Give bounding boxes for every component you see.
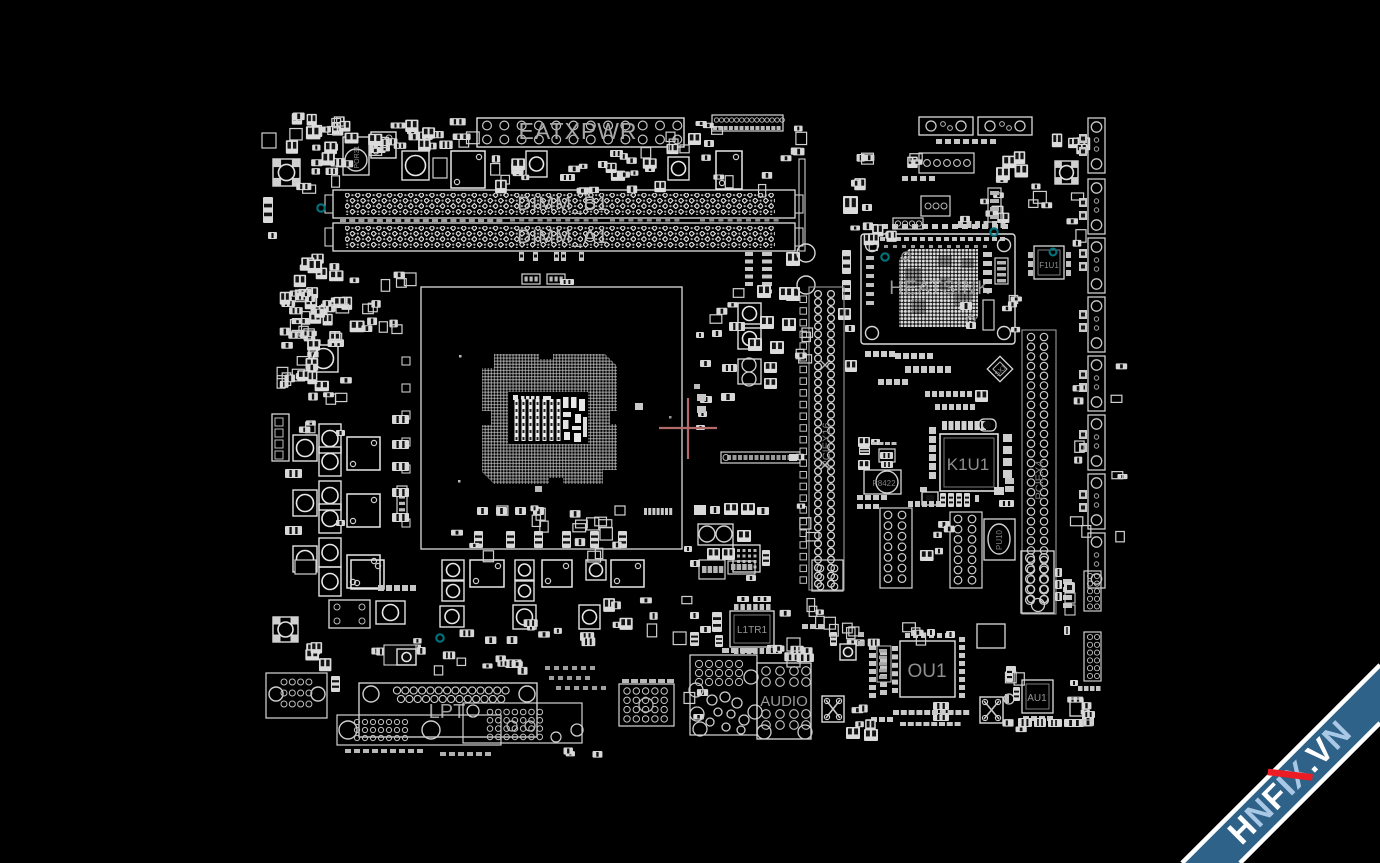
- svg-text:F1U1: F1U1: [1039, 261, 1059, 270]
- svg-text:L1TR1: L1TR1: [737, 625, 767, 636]
- svg-text:K1U1: K1U1: [947, 455, 990, 474]
- svg-text:PCIEX16: PCIEX16: [821, 422, 833, 467]
- svg-text:P8422: P8422: [872, 479, 896, 488]
- svg-text:AU1: AU1: [1027, 693, 1047, 704]
- svg-text:AUDIO: AUDIO: [760, 693, 808, 710]
- svg-text:LPT: LPT: [429, 701, 466, 723]
- svg-text:DIMM_A1: DIMM_A1: [517, 227, 608, 248]
- svg-text:DIMM_B1: DIMM_B1: [517, 194, 608, 215]
- svg-text:OU1: OU1: [907, 661, 946, 682]
- svg-text:EATXPWR: EATXPWR: [518, 118, 637, 144]
- svg-text:HEATSINK: HEATSINK: [889, 278, 991, 299]
- svg-text:POR31: POR31: [354, 145, 361, 168]
- svg-text:PCIEX4: PCIEX4: [1034, 460, 1046, 499]
- svg-text:PU10: PU10: [995, 529, 1004, 550]
